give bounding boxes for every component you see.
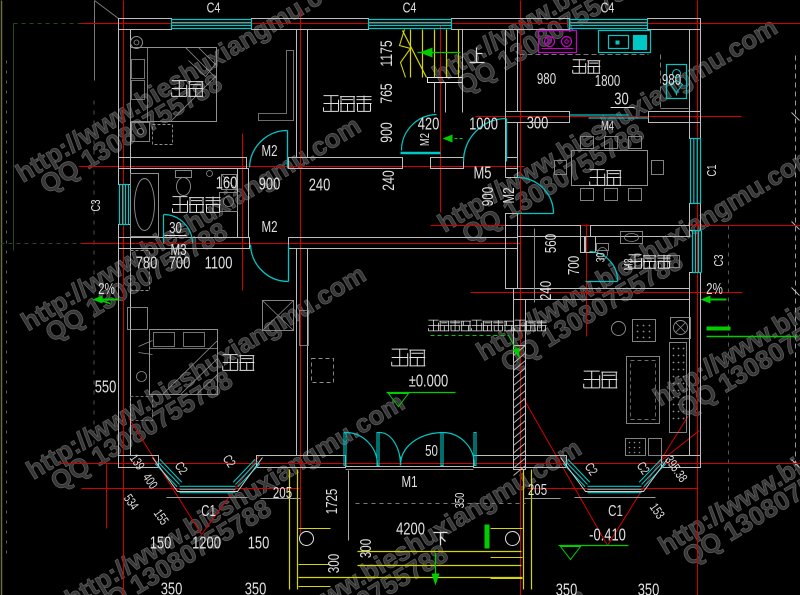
svg-text:350: 350 bbox=[161, 580, 183, 595]
svg-text:M4: M4 bbox=[601, 120, 614, 134]
svg-text:C4: C4 bbox=[403, 0, 417, 16]
svg-text:160: 160 bbox=[216, 174, 238, 194]
svg-text:350: 350 bbox=[638, 581, 660, 595]
svg-text:150: 150 bbox=[248, 534, 270, 554]
svg-text:900: 900 bbox=[259, 175, 281, 195]
svg-text:C1: C1 bbox=[706, 165, 720, 177]
svg-text:2%: 2% bbox=[706, 279, 723, 297]
svg-text:350: 350 bbox=[454, 493, 468, 509]
svg-text:900: 900 bbox=[378, 122, 396, 142]
svg-text:350: 350 bbox=[556, 581, 578, 595]
svg-text:1800: 1800 bbox=[595, 71, 621, 89]
svg-text:1200: 1200 bbox=[192, 534, 221, 554]
svg-text:420: 420 bbox=[418, 115, 440, 135]
svg-text:1100: 1100 bbox=[205, 254, 233, 274]
svg-text:560: 560 bbox=[541, 234, 559, 253]
svg-text:700: 700 bbox=[169, 254, 191, 274]
svg-text:1175: 1175 bbox=[378, 40, 396, 66]
svg-text:240: 240 bbox=[380, 170, 398, 190]
svg-text:205: 205 bbox=[273, 483, 292, 501]
svg-text:240: 240 bbox=[309, 176, 331, 196]
svg-text:M1: M1 bbox=[401, 472, 417, 490]
svg-text:C1: C1 bbox=[608, 501, 623, 519]
svg-text:M2: M2 bbox=[261, 141, 277, 159]
svg-text:150: 150 bbox=[150, 534, 172, 554]
svg-text:780: 780 bbox=[136, 254, 158, 274]
svg-text:30: 30 bbox=[614, 90, 629, 110]
svg-text:30: 30 bbox=[595, 253, 608, 263]
svg-text:±0.000: ±0.000 bbox=[409, 372, 449, 392]
svg-text:C4: C4 bbox=[207, 0, 221, 16]
svg-text:300: 300 bbox=[324, 554, 342, 573]
svg-text:2%: 2% bbox=[98, 279, 115, 297]
svg-text:M2: M2 bbox=[261, 217, 277, 235]
svg-text:205: 205 bbox=[528, 480, 547, 498]
svg-text:550: 550 bbox=[95, 378, 117, 398]
svg-text:C3: C3 bbox=[90, 200, 104, 212]
svg-text:1725: 1725 bbox=[322, 488, 340, 514]
svg-text:300: 300 bbox=[527, 114, 549, 134]
svg-text:980: 980 bbox=[537, 69, 556, 87]
svg-text:C3: C3 bbox=[713, 255, 727, 267]
svg-text:300: 300 bbox=[356, 539, 374, 558]
svg-text:M2: M2 bbox=[419, 133, 433, 146]
svg-text:900: 900 bbox=[478, 187, 496, 206]
svg-text:-0.410: -0.410 bbox=[589, 526, 626, 546]
svg-text:C4: C4 bbox=[601, 0, 615, 16]
svg-text:350: 350 bbox=[245, 580, 267, 595]
svg-text:700: 700 bbox=[564, 256, 582, 275]
svg-text:50: 50 bbox=[425, 441, 438, 459]
svg-text:M3: M3 bbox=[623, 258, 636, 270]
svg-text:765: 765 bbox=[378, 83, 396, 103]
svg-text:30: 30 bbox=[169, 218, 182, 236]
svg-text:M2: M2 bbox=[499, 187, 517, 203]
svg-text:980: 980 bbox=[662, 70, 681, 88]
svg-text:1000: 1000 bbox=[469, 115, 498, 135]
svg-text:4200: 4200 bbox=[396, 520, 425, 540]
svg-text:M5: M5 bbox=[474, 164, 492, 184]
svg-text:C1: C1 bbox=[201, 501, 216, 519]
svg-text:240: 240 bbox=[536, 281, 554, 300]
